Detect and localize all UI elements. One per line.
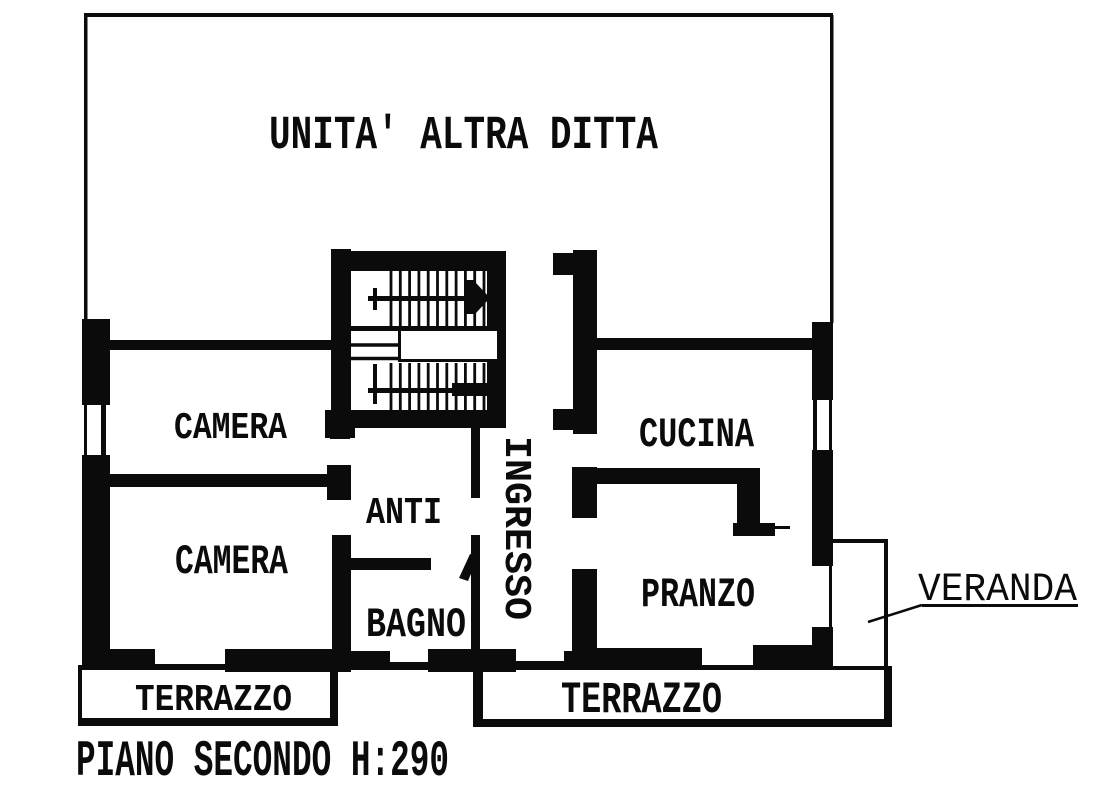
svg-text:CUCINA: CUCINA xyxy=(639,412,755,459)
svg-text:ANTI: ANTI xyxy=(366,491,442,534)
svg-text:PIANO SECONDO H:290: PIANO SECONDO H:290 xyxy=(76,734,449,792)
svg-text:CAMERA: CAMERA xyxy=(174,406,288,449)
svg-text:UNITA' ALTRA DITTA: UNITA' ALTRA DITTA xyxy=(269,110,658,163)
svg-text:BAGNO: BAGNO xyxy=(366,602,466,649)
svg-text:CAMERA: CAMERA xyxy=(175,539,289,586)
svg-text:TERRAZZO: TERRAZZO xyxy=(135,678,292,721)
svg-text:INGRESSO: INGRESSO xyxy=(494,436,537,620)
svg-text:PRANZO: PRANZO xyxy=(641,572,755,619)
svg-text:TERRAZZO: TERRAZZO xyxy=(561,675,722,726)
